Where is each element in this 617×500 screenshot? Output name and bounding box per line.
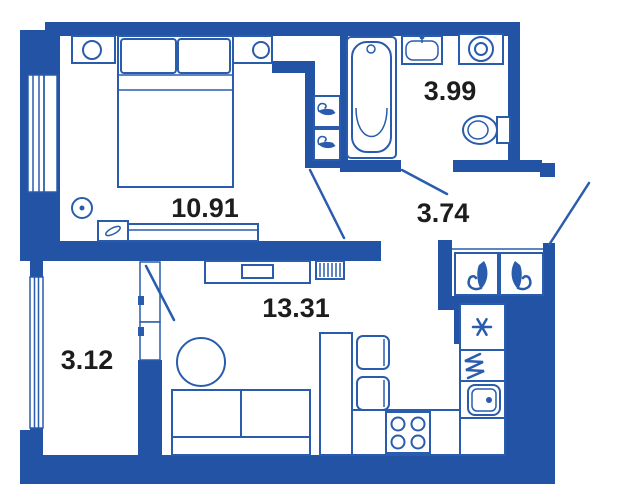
bedroom-door-swing <box>310 170 344 238</box>
living-kitchen-area-label: 13.31 <box>262 293 330 323</box>
wall-left-above-window <box>28 36 60 75</box>
balcony-glazing <box>30 277 43 428</box>
hall-wardrobe <box>452 249 543 295</box>
kitchen-sink-icon <box>468 385 500 415</box>
wall-bathroom-bottom-right <box>453 160 542 172</box>
bedroom-area-label: 10.91 <box>171 193 239 223</box>
bedroom-window-sill <box>44 75 57 192</box>
chair <box>357 377 389 410</box>
dresser <box>128 224 258 241</box>
wall-left-sliver <box>20 30 28 241</box>
bedroom-closet <box>314 96 340 160</box>
wall-bathroom-bottom-left <box>340 160 401 172</box>
bedroom-window <box>28 75 57 192</box>
balcony-door <box>138 262 174 360</box>
floor-plan-drawing: 10.91 3.99 3.74 13.31 3.12 <box>0 0 617 500</box>
balcony-area-label: 3.12 <box>61 345 114 375</box>
stove-hob-icon <box>386 412 430 453</box>
bathroom-door-swing <box>402 170 447 194</box>
kitchen-cabinet-column <box>460 304 505 455</box>
pillow <box>178 39 230 73</box>
wall-kitchen-outer <box>505 300 555 460</box>
sofa <box>172 390 310 455</box>
faucet <box>420 35 425 40</box>
bed <box>118 36 233 187</box>
floor-lamp-icon <box>72 198 92 218</box>
round-table <box>177 338 225 386</box>
washbasin-icon <box>402 35 442 65</box>
wall-bottom <box>20 455 555 484</box>
washing-machine-icon <box>459 34 503 64</box>
vanity-table <box>98 221 128 241</box>
wall-top <box>45 22 520 36</box>
wall-balcony-left-top <box>30 255 43 277</box>
tv-stand <box>205 261 310 283</box>
wall-entry-stub <box>540 163 555 177</box>
radiator-icon <box>316 261 344 279</box>
wall-balcony-partition-lower <box>138 360 162 455</box>
balcony-door-handle <box>138 296 144 305</box>
balcony-window-handle <box>138 327 144 336</box>
bathtub-icon <box>347 37 396 158</box>
wall-bedroom-bottom <box>20 241 381 261</box>
toilet-icon <box>463 116 510 144</box>
nightstand-left <box>72 36 115 63</box>
hallway-area-label: 3.74 <box>417 198 470 228</box>
entrance-door-swing <box>549 183 589 245</box>
pillow <box>121 39 176 73</box>
tv-icon <box>242 265 273 278</box>
kitchen-table <box>320 333 352 455</box>
bathroom-area-label: 3.99 <box>424 76 477 106</box>
nightstand-right <box>233 36 272 63</box>
chair <box>357 336 389 369</box>
wall-left-below-window <box>28 192 60 241</box>
wall-bathroom-right <box>508 22 520 172</box>
wall-wardrobe-stub <box>438 240 452 302</box>
floor-plan: 10.91 3.99 3.74 13.31 3.12 <box>0 0 617 500</box>
